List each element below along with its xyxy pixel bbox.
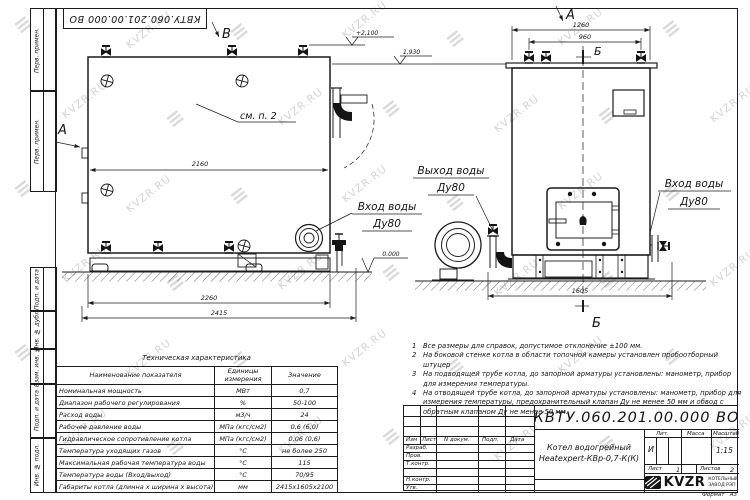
elevation-top-label: 1,930 (403, 49, 420, 56)
view-a-label: А (565, 8, 575, 23)
tb-scale-header: Масштаб (713, 431, 739, 437)
inlet-label: Вход воды (665, 178, 724, 190)
view-b-label: В (222, 27, 231, 42)
see-note-label: см. п. 2 (240, 111, 277, 122)
front-inlet-dn: Ду80 (372, 218, 401, 230)
tech-table-title: Техническая характеристика (56, 354, 337, 366)
dim-2415: 2415 (211, 309, 228, 317)
document-designation: КВТУ.060.201.00.000 ВО (534, 406, 739, 429)
table-row: Диапазон рабочего регулирования%50-100 (57, 397, 338, 409)
tb-lit-value: И (648, 445, 654, 454)
tb-lit-header: Лит. (656, 431, 669, 437)
outlet-label: Выход воды (418, 165, 485, 177)
table-row: Температура уходящих газов°Сне более 250 (57, 445, 338, 457)
inlet-dn: Ду80 (679, 196, 708, 208)
table-row: Габариты котла (длинна х ширина х высота… (57, 481, 338, 493)
table-row: Гидравлическое сопротивление котлаМПа (к… (57, 433, 338, 445)
tb-utv: Утв. (406, 485, 418, 491)
format-label: Формат А3 (620, 492, 737, 498)
note-item: 3На подводящей трубе котла, до запорной … (412, 370, 742, 389)
document-name: Котел водогрейный Heatexpert-КВр-0,7-К(К… (534, 429, 644, 479)
dim-1260: 1260 (573, 21, 590, 29)
tech-col-value: Значение (272, 367, 338, 385)
tech-col-unit: Единицы измерения (215, 367, 272, 385)
rotated-designation-text: КВТУ.060.201.00.000 ВО (69, 13, 200, 24)
kvzr-logo-icon (645, 476, 661, 489)
tb-prov: Пров. (406, 453, 422, 459)
dim-960: 960 (579, 33, 591, 41)
tech-characteristics: Техническая характеристика Наименование … (56, 354, 337, 493)
tech-table: Наименование показателя Единицы измерени… (56, 366, 338, 493)
table-row: Номинальная мощностьМВт0,7 (57, 385, 338, 397)
title-block: Изм Лист N докум. Подп. Дата Разраб. Про… (403, 405, 738, 491)
section-a-label: А (57, 123, 67, 138)
table-row: Максимальная рабочая температура воды°С1… (57, 457, 338, 469)
note-item: 2На боковой стенке котла в области топоч… (412, 351, 742, 370)
table-row: Температура воды (Вход/выход)°С70/95 (57, 469, 338, 481)
dim-2160: 2160 (192, 160, 209, 168)
tb-razrab: Разраб. (406, 445, 428, 451)
tb-izm: Изм (406, 437, 417, 443)
section-b-bottom-label: Б (592, 316, 601, 331)
dim-1605: 1605 (572, 287, 589, 295)
elevation-zero-label: 0.000 (382, 251, 399, 258)
front-inlet-label: Вход воды (358, 201, 417, 213)
section-b-top-label: Б (594, 45, 602, 58)
tb-nkontr: Н.контр. (406, 477, 431, 483)
elevation-valves-label: +2,100 (356, 30, 378, 37)
tb-list: Лист (422, 437, 436, 443)
tb-scale-value: 1:15 (716, 446, 733, 455)
outlet-dn: Ду80 (436, 182, 465, 194)
tb-data: Дата (510, 437, 524, 443)
company-name: KVZR (664, 475, 706, 490)
note-item: 1Все размеры для справок, допустимое отк… (412, 342, 742, 351)
side-view: 1260 960 А Б (413, 6, 731, 331)
tb-sheet-label: Лист (648, 466, 662, 472)
table-row: Рабочее давление водыМПа (кгс/см2)0,6 (6… (57, 421, 338, 433)
tb-mass-header: Масса (687, 431, 705, 437)
company-logo-cell: KVZR КОТЕЛЬНЫЙ ЗАВОД РЭП (644, 473, 739, 492)
tb-doc: N докум. (444, 437, 470, 443)
company-subtitle: КОТЕЛЬНЫЙ ЗАВОД РЭП (708, 477, 738, 488)
rotated-designation-stamp: КВТУ.060.201.00.000 ВО (63, 8, 207, 29)
drawing-sheet: ≡KVZR.RU≡KVZR.RU≡KVZR.RU≡KVZR.RU≡KVZR.RU… (0, 0, 750, 500)
dim-2260: 2260 (201, 294, 218, 302)
tb-podp: Подп. (482, 437, 499, 443)
tb-tkontr: Т.контр. (406, 461, 430, 467)
table-row: Расход водым3/ч24 (57, 409, 338, 421)
tb-sheets-label: Листов (700, 466, 721, 472)
tech-col-name: Наименование показателя (57, 367, 215, 385)
